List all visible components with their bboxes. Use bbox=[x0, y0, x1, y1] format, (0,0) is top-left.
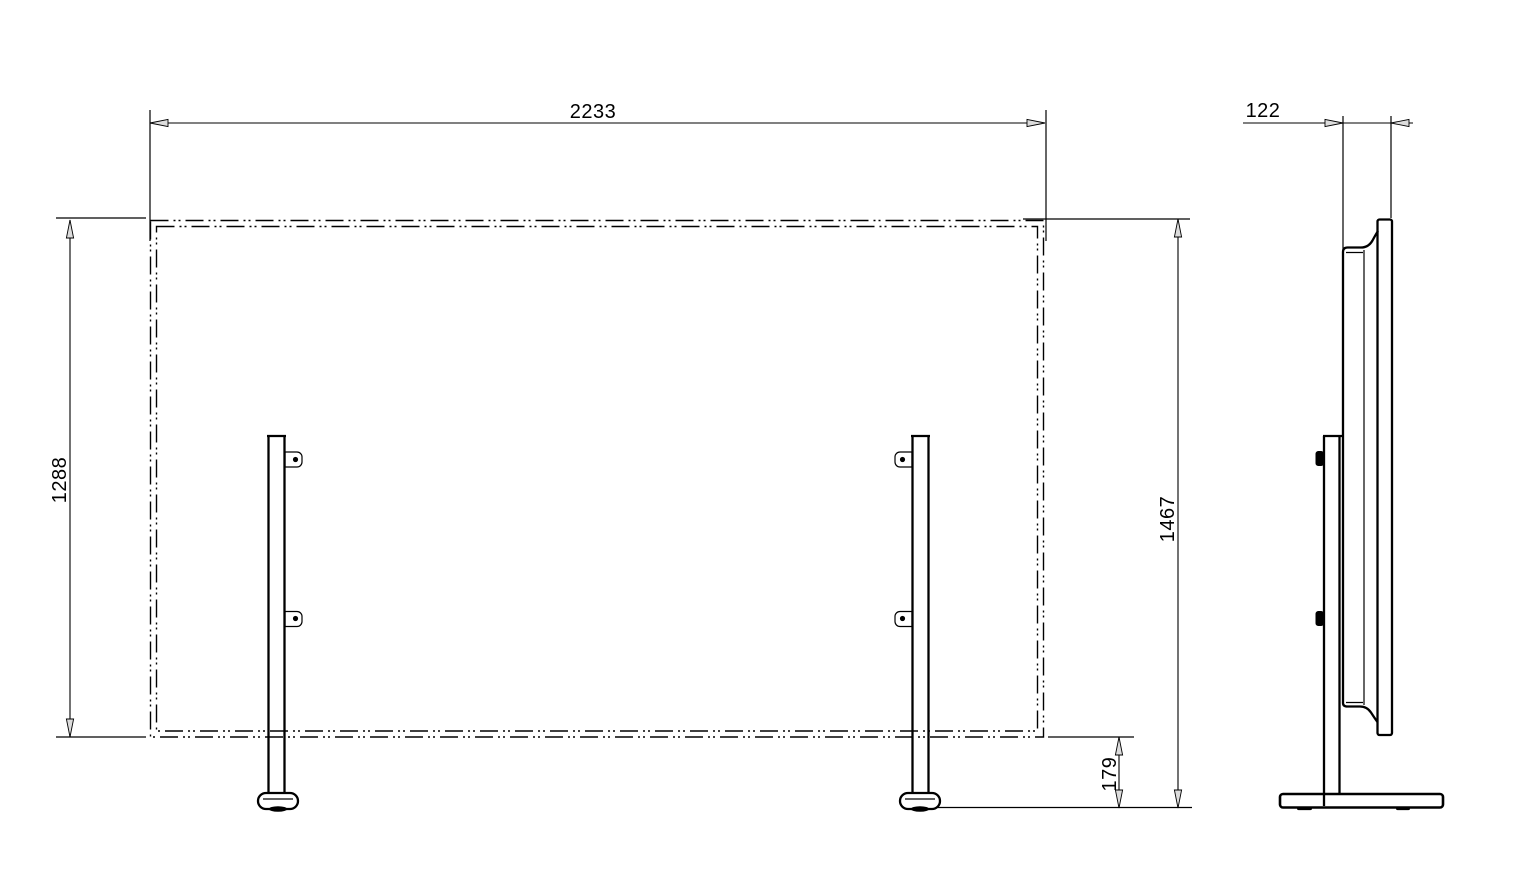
arrowhead-right bbox=[1027, 119, 1045, 126]
mounting-hole bbox=[293, 616, 298, 621]
stand-foot bbox=[900, 793, 940, 812]
arrowhead-left bbox=[150, 119, 168, 126]
base-pad bbox=[1396, 807, 1410, 811]
mounting-tab bbox=[895, 612, 912, 627]
technical-drawing: 2233 1288 1467 179 bbox=[0, 0, 1529, 875]
right-stand bbox=[895, 436, 940, 812]
stand-column bbox=[913, 436, 929, 793]
arrowhead-up bbox=[1174, 219, 1181, 237]
base-foot-profile bbox=[1280, 794, 1443, 808]
drawing-canvas: 2233 1288 1467 179 bbox=[0, 0, 1529, 875]
arrowhead-down bbox=[1174, 790, 1181, 808]
mounting-hole bbox=[900, 616, 905, 621]
dim-screen-height-label: 1288 bbox=[49, 457, 71, 504]
front-view: 2233 1288 1467 179 bbox=[49, 101, 1192, 812]
stand-foot bbox=[258, 793, 298, 812]
rear-enclosure-bottom bbox=[1343, 703, 1378, 722]
thumb-screw bbox=[1316, 611, 1325, 626]
dim-ground-clearance-label: 179 bbox=[1099, 757, 1121, 792]
base-pad bbox=[1297, 807, 1312, 811]
dimension-screen-height: 1288 bbox=[49, 218, 146, 737]
stand-profile bbox=[1280, 436, 1443, 810]
mounting-hole bbox=[900, 457, 905, 462]
panel-profile bbox=[1343, 220, 1392, 736]
left-stand bbox=[258, 436, 302, 812]
stand-column bbox=[269, 436, 285, 793]
rear-enclosure-top bbox=[1343, 231, 1378, 252]
dim-width-label: 2233 bbox=[570, 101, 617, 123]
screen-outline-inner bbox=[157, 227, 1038, 732]
mounting-tab bbox=[285, 612, 302, 627]
arrowhead-up bbox=[66, 220, 73, 238]
mounting-hole bbox=[293, 457, 298, 462]
arrowhead-right bbox=[1325, 119, 1343, 126]
side-view: 122 bbox=[1243, 100, 1443, 810]
foot-pad bbox=[269, 806, 287, 812]
front-bezel-profile bbox=[1378, 220, 1393, 736]
mounting-tab bbox=[895, 452, 912, 467]
mounting-tab bbox=[285, 452, 302, 467]
foot-pad bbox=[911, 806, 929, 812]
stand-column-profile bbox=[1324, 436, 1340, 806]
dim-depth-label: 122 bbox=[1246, 100, 1281, 122]
arrowhead-up bbox=[1115, 737, 1122, 755]
dimension-total-height: 1467 bbox=[1023, 219, 1190, 808]
thumb-screw bbox=[1316, 451, 1325, 466]
dimension-ground-clearance: 179 bbox=[1048, 737, 1134, 808]
dimension-depth: 122 bbox=[1243, 100, 1413, 250]
arrowhead-down bbox=[1115, 790, 1122, 808]
arrowhead-left bbox=[1391, 119, 1409, 126]
arrowhead-down bbox=[66, 719, 73, 737]
dim-total-height-label: 1467 bbox=[1157, 496, 1179, 543]
